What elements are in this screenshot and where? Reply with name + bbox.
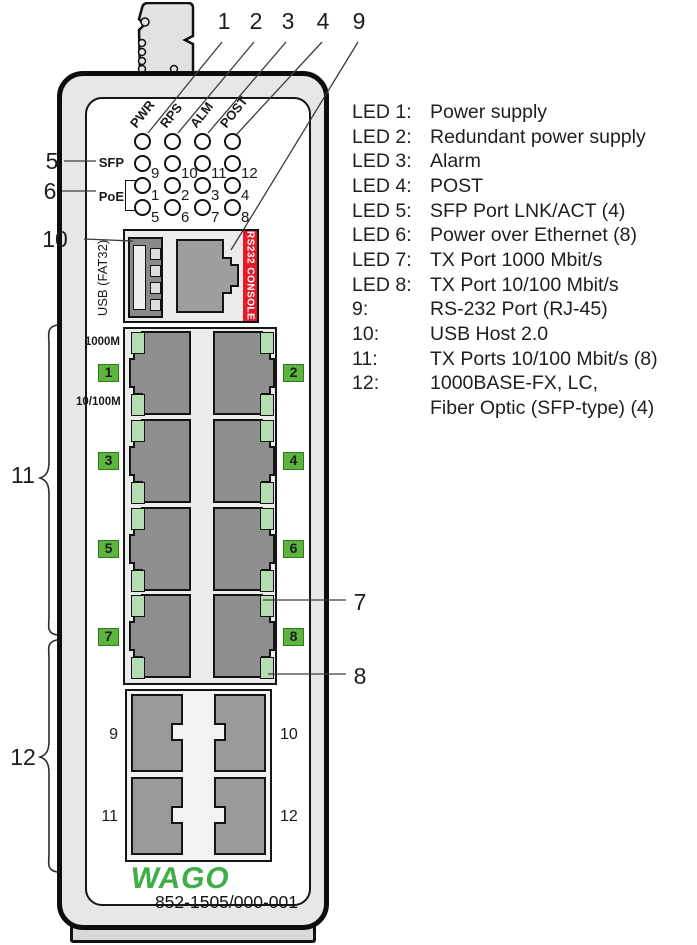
sfp-led-10: [164, 155, 181, 172]
legend-text: SFP Port LNK/ACT (4): [430, 199, 625, 224]
legend-row: 12:1000BASE-FX, LC,: [352, 371, 658, 396]
legend-key: LED 1:: [352, 100, 430, 125]
sfp-cage-9: [131, 694, 183, 772]
sfp-row-label: SFP: [94, 155, 124, 170]
legend-key: LED 2:: [352, 125, 430, 150]
port4-10-100m-led: [260, 482, 274, 504]
poe-led-1: [134, 177, 151, 194]
legend-row: LED 8:TX Port 10/100 Mbit/s: [352, 273, 658, 298]
callout-7: 7: [352, 589, 368, 616]
callout-8: 8: [352, 663, 368, 690]
port2-1000m-led: [260, 332, 274, 354]
legend-text: Fiber Optic (SFP-type) (4): [430, 396, 654, 421]
poe-led-5: [134, 199, 151, 216]
poe-led-number: 3: [211, 187, 219, 204]
port5-10-100m-led: [131, 570, 145, 592]
speed-label-1000m: 1000M: [84, 336, 120, 348]
switch-front-view-diagram: PWR RPS ALM POST 9 10 11 12 1 2 3 4 5 6 …: [0, 0, 697, 945]
usb-contact: [150, 282, 161, 294]
rs232-console-label: RS232 CONSOLE: [245, 231, 256, 320]
callout-10: 10: [40, 226, 70, 253]
tx-port-badge-6: 6: [283, 540, 304, 558]
legend-row: LED 1:Power supply: [352, 100, 658, 125]
sfp-port-number-9: 9: [98, 726, 118, 744]
port2-10-100m-led: [260, 394, 274, 416]
poe-led-number: 4: [241, 187, 249, 204]
poe-led-7: [194, 199, 211, 216]
sfp-led-9: [134, 155, 151, 172]
legend-row: LED 3:Alarm: [352, 149, 658, 174]
port7-1000m-led: [131, 595, 145, 617]
poe-led-8: [224, 199, 241, 216]
legend-text: Power over Ethernet (8): [430, 223, 637, 248]
sfp-port-number-12: 12: [280, 808, 300, 826]
sfp-cage-11: [131, 777, 183, 855]
legend-row: 11:TX Ports 10/100 Mbit/s (8): [352, 347, 658, 372]
legend-row: LED 2:Redundant power supply: [352, 125, 658, 150]
callout-11: 11: [8, 462, 38, 489]
legend-key: LED 3:: [352, 149, 430, 174]
poe-led-number: 1: [151, 187, 159, 204]
port8-1000m-led: [260, 595, 274, 617]
post-led: [224, 133, 241, 150]
usb-contact: [150, 265, 161, 277]
legend: LED 1:Power supply LED 2:Redundant power…: [352, 100, 658, 421]
callout-3: 3: [280, 8, 296, 35]
legend-key: LED 6:: [352, 223, 430, 248]
port3-1000m-led: [131, 420, 145, 442]
poe-led-number: 8: [241, 209, 249, 226]
legend-text: 1000BASE-FX, LC,: [430, 371, 598, 396]
sfp-cage-10: [214, 694, 266, 772]
legend-text: Redundant power supply: [430, 125, 646, 150]
poe-led-number: 6: [181, 209, 189, 226]
port4-1000m-led: [260, 420, 274, 442]
sfp-led-number: 10: [181, 165, 198, 182]
legend-text: Power supply: [430, 100, 547, 125]
tx-port-badge-2: 2: [283, 364, 304, 382]
callout-6: 6: [42, 178, 58, 205]
sfp-port-number-10: 10: [280, 726, 300, 744]
callout-12: 12: [8, 744, 38, 771]
poe-led-2: [164, 177, 181, 194]
legend-key: LED 4:: [352, 174, 430, 199]
usb-fat32-label: USB (FAT32): [95, 236, 109, 320]
legend-row: 9:RS-232 Port (RJ-45): [352, 297, 658, 322]
rs232-console-label-strip: RS232 CONSOLE: [243, 231, 257, 321]
usb-contact: [150, 299, 161, 311]
legend-key: 11:: [352, 347, 430, 372]
legend-key: 9:: [352, 297, 430, 322]
poe-led-number: 2: [181, 187, 189, 204]
legend-row: LED 5:SFP Port LNK/ACT (4): [352, 199, 658, 224]
legend-key: LED 7:: [352, 248, 430, 273]
usb-contact: [150, 248, 161, 260]
legend-row: LED 6:Power over Ethernet (8): [352, 223, 658, 248]
part-number: 852-1505/000-001: [140, 892, 298, 913]
legend-key: 10:: [352, 322, 430, 347]
callout-1: 1: [216, 8, 232, 35]
port3-10-100m-led: [131, 482, 145, 504]
rps-led: [164, 133, 181, 150]
callout-2: 2: [248, 8, 264, 35]
speed-label-10-100m: 10/100M: [76, 396, 120, 408]
legend-text: TX Port 10/100 Mbit/s: [430, 273, 619, 298]
port7-10-100m-led: [131, 657, 145, 679]
legend-key: [352, 396, 430, 421]
callout-4: 4: [315, 8, 331, 35]
din-rail-clip: [136, 2, 196, 74]
poe-row-label: PoE: [94, 189, 124, 204]
callout-9: 9: [351, 8, 367, 35]
rs232-console-port: [176, 239, 240, 313]
port1-1000m-led: [131, 332, 145, 354]
alm-led: [194, 133, 211, 150]
usb-tongue: [133, 245, 146, 310]
legend-text: POST: [430, 174, 483, 199]
poe-rows-bracket: [125, 180, 136, 211]
legend-text: TX Port 1000 Mbit/s: [430, 248, 602, 273]
poe-led-number: 5: [151, 209, 159, 226]
legend-text: TX Ports 10/100 Mbit/s (8): [430, 347, 658, 372]
legend-row: Fiber Optic (SFP-type) (4): [352, 396, 658, 421]
legend-row: LED 7:TX Port 1000 Mbit/s: [352, 248, 658, 273]
sfp-led-number: 11: [211, 165, 227, 182]
wago-logo: WAGO: [129, 862, 233, 896]
sfp-led-number: 9: [151, 165, 159, 182]
pwr-led: [134, 133, 151, 150]
sfp-cage-12: [214, 777, 266, 855]
callout-5: 5: [44, 148, 60, 175]
poe-led-6: [164, 199, 181, 216]
legend-key: LED 8:: [352, 273, 430, 298]
tx-port-badge-7: 7: [98, 628, 119, 646]
sfp-port-number-11: 11: [98, 808, 118, 826]
tx-port-badge-5: 5: [98, 540, 119, 558]
legend-row: 10:USB Host 2.0: [352, 322, 658, 347]
tx-port-badge-4: 4: [283, 452, 304, 470]
tx-port-badge-3: 3: [98, 452, 119, 470]
tx-port-badge-8: 8: [283, 628, 304, 646]
legend-key: 12:: [352, 371, 430, 396]
legend-row: LED 4:POST: [352, 174, 658, 199]
port6-10-100m-led: [260, 570, 274, 592]
legend-text: Alarm: [430, 149, 481, 174]
legend-text: RS-232 Port (RJ-45): [430, 297, 608, 322]
port8-10-100m-led: [260, 657, 274, 679]
port1-10-100m-led: [131, 394, 145, 416]
sfp-led-number: 12: [241, 165, 258, 182]
port5-1000m-led: [131, 508, 145, 530]
legend-text: USB Host 2.0: [430, 322, 548, 347]
port6-1000m-led: [260, 508, 274, 530]
poe-led-number: 7: [211, 209, 219, 226]
legend-key: LED 5:: [352, 199, 430, 224]
tx-port-badge-1: 1: [98, 364, 119, 382]
